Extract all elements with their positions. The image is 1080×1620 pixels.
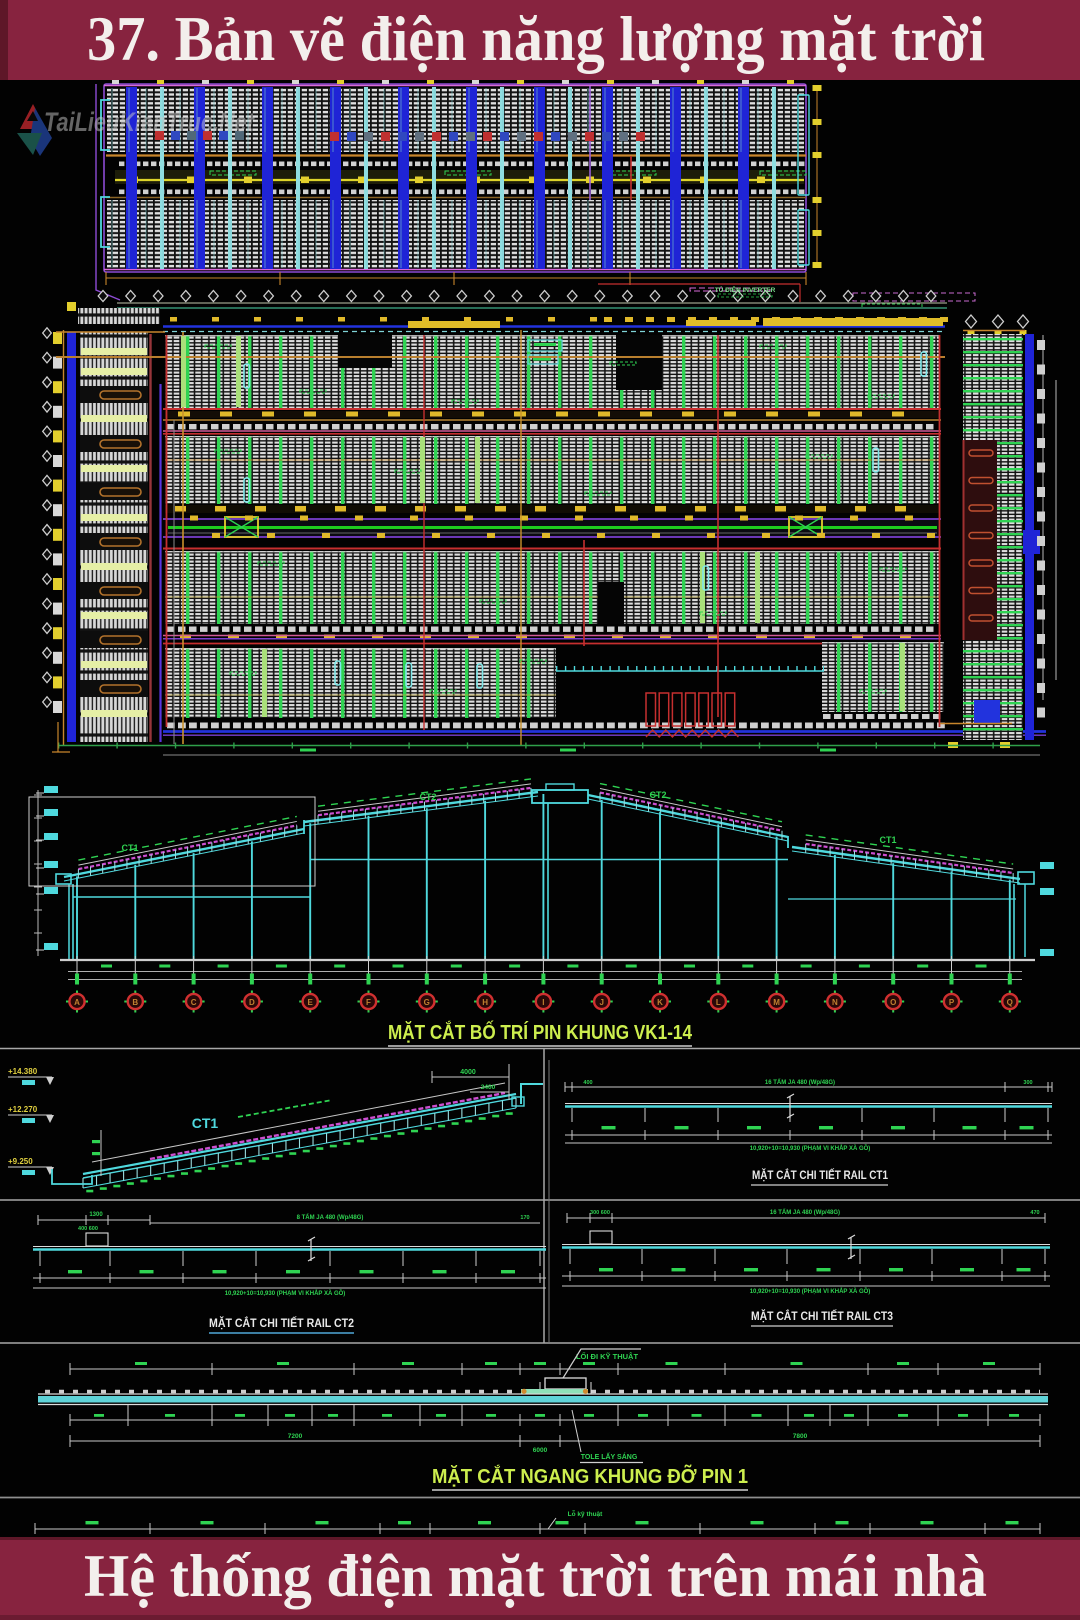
svg-text:MẶT CẮT NGANG KHUNG ĐỠ PIN 1: MẶT CẮT NGANG KHUNG ĐỠ PIN 1: [432, 1464, 748, 1488]
svg-text:+12.270: +12.270: [8, 1105, 38, 1114]
svg-text:170: 170: [520, 1215, 529, 1221]
svg-text:H: H: [482, 998, 488, 1007]
svg-text:1300: 1300: [89, 1212, 103, 1218]
svg-text:+14.380: +14.380: [8, 1067, 38, 1076]
svg-text:O: O: [890, 998, 896, 1007]
svg-text:4000: 4000: [460, 1069, 476, 1076]
svg-text:8 TẤM JA 480 (Wp/48G): 8 TẤM JA 480 (Wp/48G): [297, 1214, 364, 1221]
svg-text:K: K: [657, 998, 663, 1007]
svg-text:400 600: 400 600: [78, 1226, 98, 1232]
svg-text:CT2: CT2: [419, 792, 436, 802]
svg-text:Lỗ kỹ thuật: Lỗ kỹ thuật: [568, 1509, 604, 1518]
svg-text:MẶT CẮT BỐ TRÍ PIN KHUNG VK1-1: MẶT CẮT BỐ TRÍ PIN KHUNG VK1-14: [388, 1020, 693, 1044]
svg-text:MẶT CẮT CHI TIẾT RAIL CT2: MẶT CẮT CHI TIẾT RAIL CT2: [209, 1315, 354, 1330]
svg-text:A: A: [74, 998, 80, 1007]
svg-text:MẶT CẮT CHI TIẾT RAIL CT3: MẶT CẮT CHI TIẾT RAIL CT3: [751, 1308, 893, 1323]
svg-text:300: 300: [1023, 1080, 1032, 1086]
svg-text:7800: 7800: [793, 1433, 808, 1440]
svg-text:470: 470: [1030, 1210, 1039, 1216]
svg-text:CT1: CT1: [121, 843, 138, 853]
svg-text:16 TẤM JA 480 (Wp/48G): 16 TẤM JA 480 (Wp/48G): [770, 1209, 840, 1216]
svg-text:B: B: [132, 998, 138, 1007]
svg-text:F: F: [366, 998, 371, 1007]
svg-text:E: E: [308, 998, 314, 1007]
svg-text:N: N: [832, 998, 838, 1007]
svg-text:M: M: [773, 998, 780, 1007]
svg-text:7200: 7200: [288, 1433, 303, 1440]
svg-text:P: P: [949, 998, 955, 1007]
svg-text:D: D: [249, 998, 255, 1007]
svg-text:C: C: [191, 998, 197, 1007]
svg-text:Q: Q: [1007, 998, 1013, 1007]
svg-text:16 TẤM JA 480 (Wp/48G): 16 TẤM JA 480 (Wp/48G): [765, 1079, 835, 1086]
svg-text:TỦ ĐIỆN INVERTER: TỦ ĐIỆN INVERTER: [715, 285, 776, 294]
svg-text:300 600: 300 600: [590, 1210, 610, 1216]
svg-text:CT2: CT2: [649, 790, 666, 800]
svg-text:J: J: [599, 998, 603, 1007]
svg-text:10,920+10=10,930 (PHẠM VI KHẮP: 10,920+10=10,930 (PHẠM VI KHẮP XÀ GỒ): [225, 1289, 346, 1297]
svg-text:I: I: [542, 998, 544, 1007]
svg-text:2400: 2400: [481, 1084, 496, 1091]
svg-text:10,920+10=10,930 (PHẠM VI KHẮP: 10,920+10=10,930 (PHẠM VI KHẮP XÀ GỒ): [750, 1144, 871, 1152]
svg-text:L: L: [716, 998, 721, 1007]
svg-text:CT1: CT1: [879, 835, 896, 845]
svg-text:LỐI ĐI KỸ THUẬT: LỐI ĐI KỸ THUẬT: [576, 1351, 638, 1361]
svg-text:CT1: CT1: [192, 1115, 219, 1131]
svg-text:G: G: [424, 998, 430, 1007]
svg-text:10,920+10=10,930 (PHẠM VI KHẮP: 10,920+10=10,930 (PHẠM VI KHẮP XÀ GỒ): [750, 1287, 871, 1295]
svg-text:400: 400: [583, 1080, 592, 1086]
svg-text:37. Bản vẽ điện năng lượng mặt: 37. Bản vẽ điện năng lượng mặt trời: [87, 3, 985, 74]
svg-text:+9.250: +9.250: [8, 1157, 33, 1166]
svg-text:TaiLieuKienTruc.Net: TaiLieuKienTruc.Net: [44, 107, 255, 137]
svg-text:MẶT CẮT CHI TIẾT RAIL CT1: MẶT CẮT CHI TIẾT RAIL CT1: [752, 1167, 888, 1182]
svg-text:Hệ thống điện mặt trời trên má: Hệ thống điện mặt trời trên mái nhà: [84, 1543, 987, 1609]
svg-text:6000: 6000: [533, 1447, 548, 1454]
